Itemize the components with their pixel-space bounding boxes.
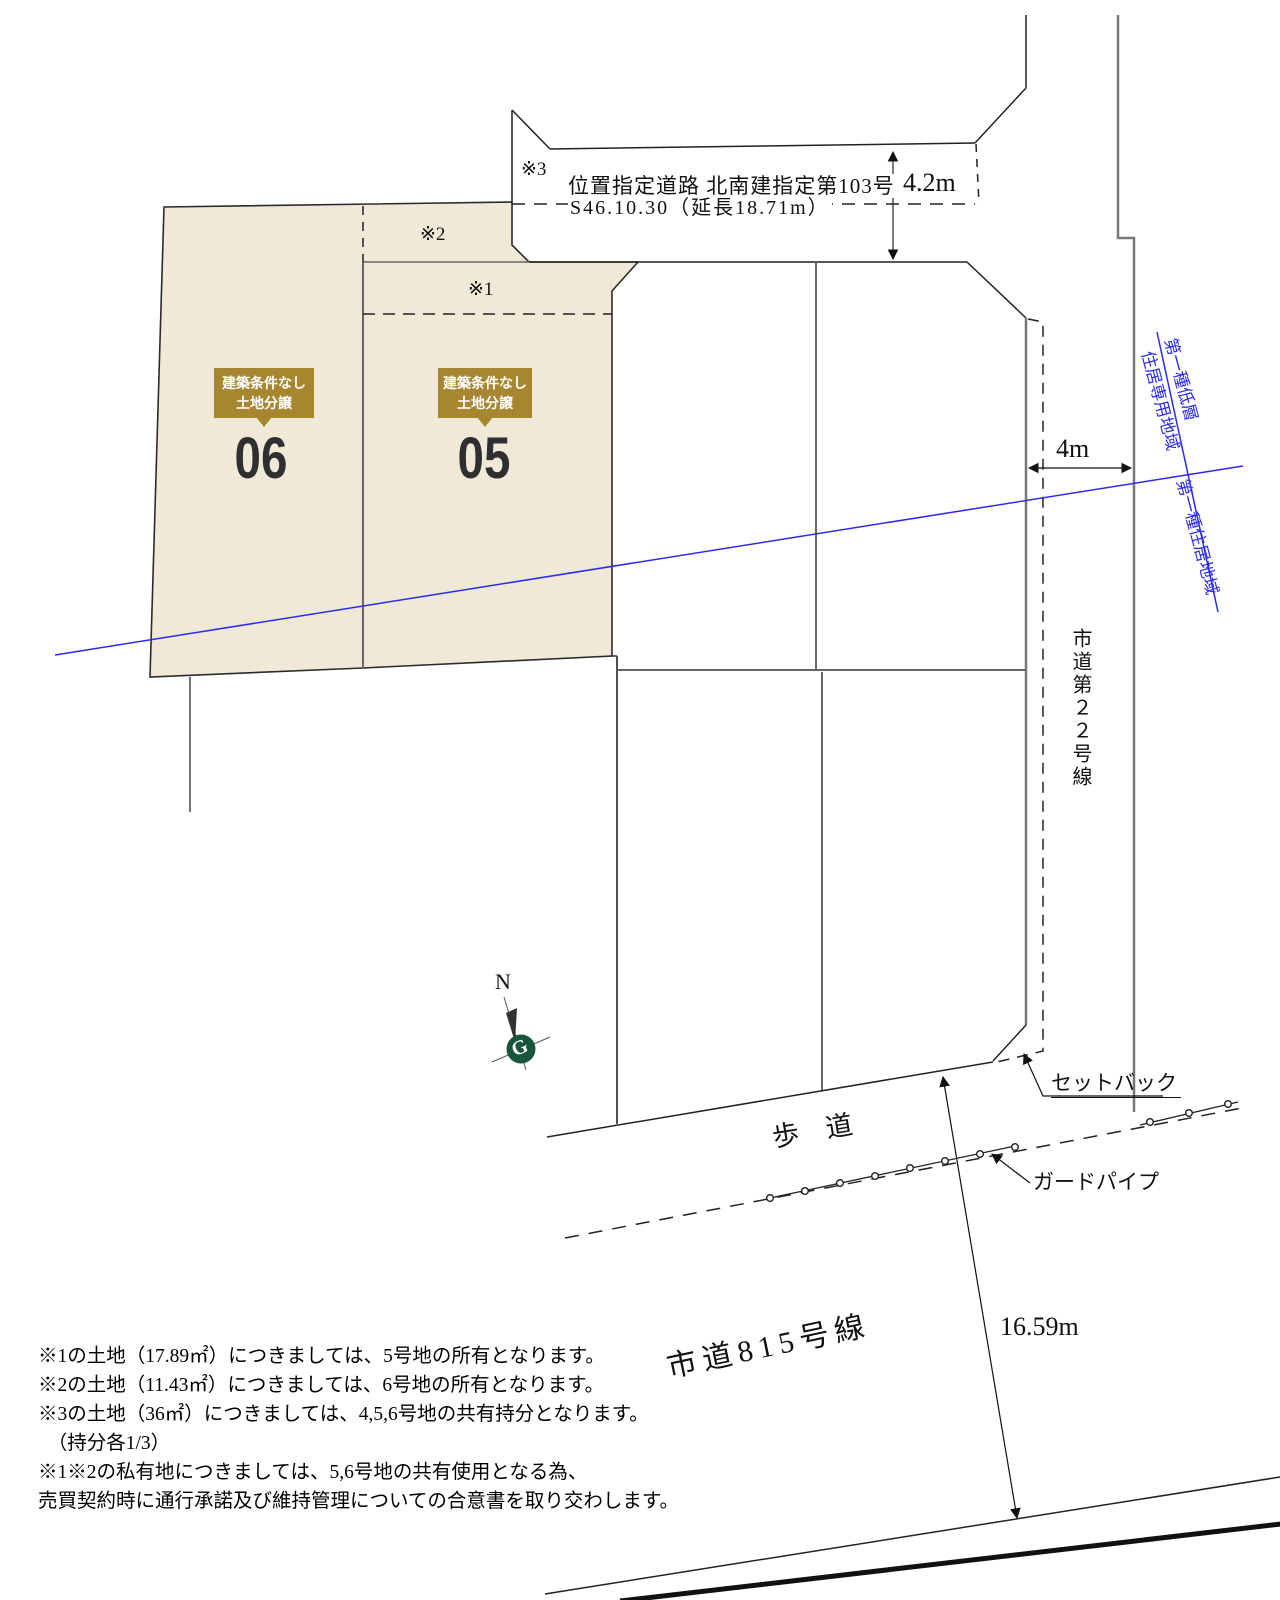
remark-line: ※1の土地（17.89㎡）につきましては、5号地の所有となります。 [38,1342,679,1371]
lot-beige-outline [150,202,638,677]
remark-line: ※1※2の私有地につきましては、5,6号地の共有使用となる為、 [38,1458,679,1487]
compass-north-label: N [495,969,511,994]
city-road22-lines [993,15,1134,1112]
remark-line: （持分各1/3） [38,1429,679,1458]
lot05-badge-line1: 建築条件なし [440,373,530,393]
lot05-badge: 建築条件なし 土地分譲 [438,368,532,418]
setback-label: セットバック [1051,1071,1181,1098]
guard-pipe-label: ガードパイプ [1033,1170,1159,1194]
lot-note1: ※1 [468,279,493,301]
remarks-block: ※1の土地（17.89㎡）につきましては、5号地の所有となります。 ※2の土地（… [38,1342,679,1516]
sidewalk-lines [545,1062,1280,1600]
frontage-dim: 16.59m [1000,1312,1079,1342]
remark-line: ※3の土地（36㎡）につきましては、4,5,6号地の共有持分となります。 [38,1400,679,1429]
private-road-note3: ※3 [521,159,546,181]
private-road-name: 位置指定道路 北南建指定第103号 [566,174,897,198]
lot06-badge-line2: 土地分譲 [216,393,312,413]
road22-width-dim: 4m [1056,434,1089,464]
lot06-badge: 建築条件なし 土地分譲 [214,368,314,418]
lot06-badge-line1: 建築条件なし [216,373,312,393]
remark-line: ※2の土地（11.43㎡）につきましては、6号地の所有となります。 [38,1371,679,1400]
lot05-number: 05 [451,430,517,488]
lot-note2: ※2 [420,224,445,246]
site-plan-page: ※3 位置指定道路 北南建指定第103号 S46.10.30（延長18.71m）… [0,0,1280,1600]
private-road-spec: S46.10.30（延長18.71m） [568,197,832,220]
road22-name: 市道第２２号線 [1068,628,1091,789]
lot06-number: 06 [228,430,294,488]
leader-lines [943,1054,1163,1518]
remark-line: 売買契約時に通行承諾及び維持管理についての合意書を取り交わします。 [38,1487,679,1516]
lot05-badge-line2: 土地分譲 [440,393,530,413]
private-road-width-dim: 4.2m [903,168,956,198]
